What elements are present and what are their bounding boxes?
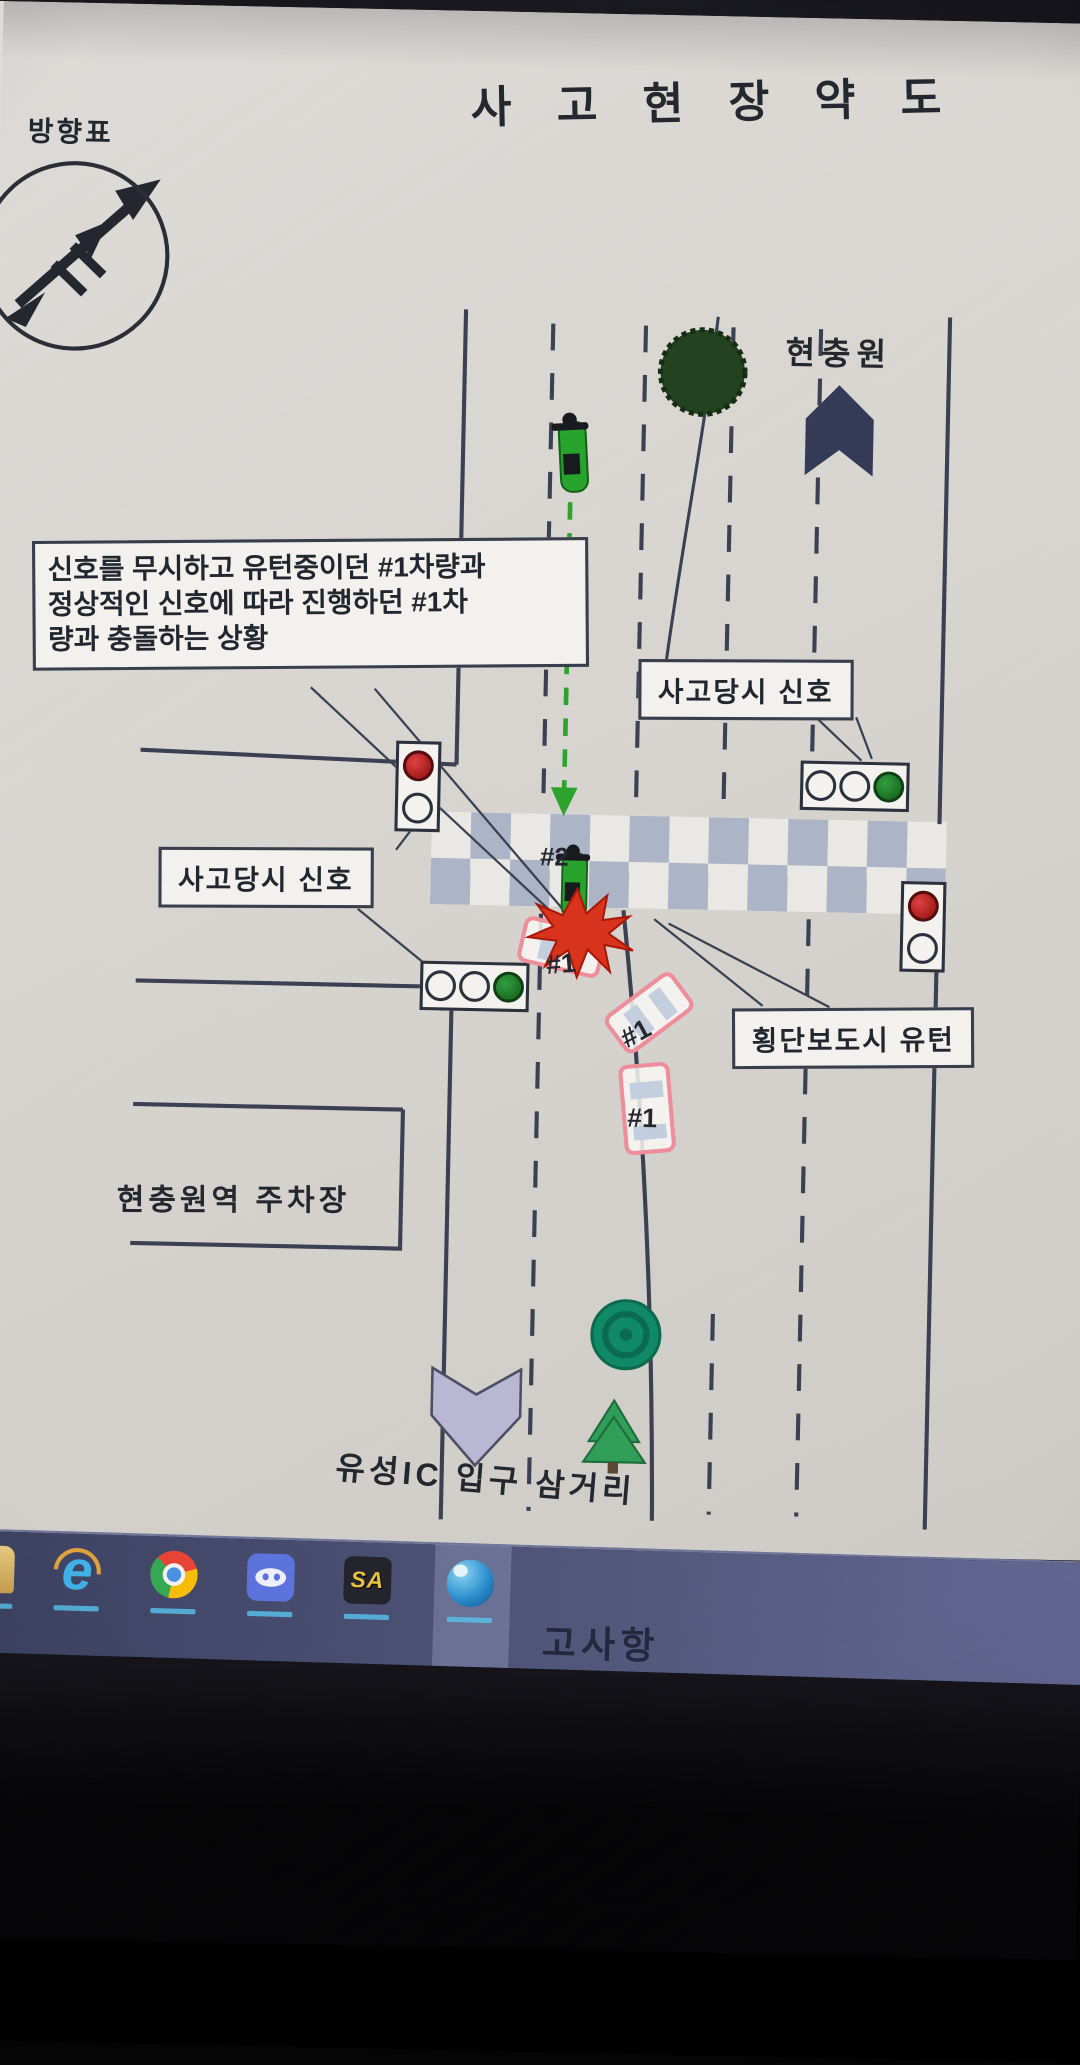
- file-explorer-icon[interactable]: [0, 1545, 15, 1594]
- taskbar-window-title[interactable]: 고사항: [541, 1613, 660, 1670]
- running-indicator: [344, 1614, 389, 1620]
- photographed-laptop-screen: 사 고 현 장 약 도 방향표 현충원 현충원역 주차장 유성IC 입구 삼거리…: [0, 0, 1080, 1960]
- app-highlight-dot: [453, 1564, 468, 1577]
- running-indicator: [150, 1608, 195, 1614]
- ie-orbit-icon: [44, 1538, 111, 1605]
- car1-label: #1: [627, 1102, 657, 1135]
- motorcycle2-label: #2: [540, 843, 569, 873]
- car1-label: #1: [545, 947, 577, 981]
- running-indicator: [0, 1602, 12, 1608]
- gta-san-andreas-icon[interactable]: SA: [343, 1556, 392, 1605]
- laptop-bezel-shadow: [0, 1647, 1080, 2064]
- running-indicator: [53, 1605, 98, 1611]
- internet-explorer-icon[interactable]: e: [53, 1547, 102, 1596]
- collision-star-icon: [527, 888, 634, 979]
- running-indicator: [247, 1611, 292, 1617]
- discord-icon[interactable]: [246, 1553, 295, 1602]
- sa-glyph: SA: [350, 1566, 384, 1594]
- chrome-icon[interactable]: [150, 1550, 199, 1599]
- discord-face: [255, 1568, 286, 1587]
